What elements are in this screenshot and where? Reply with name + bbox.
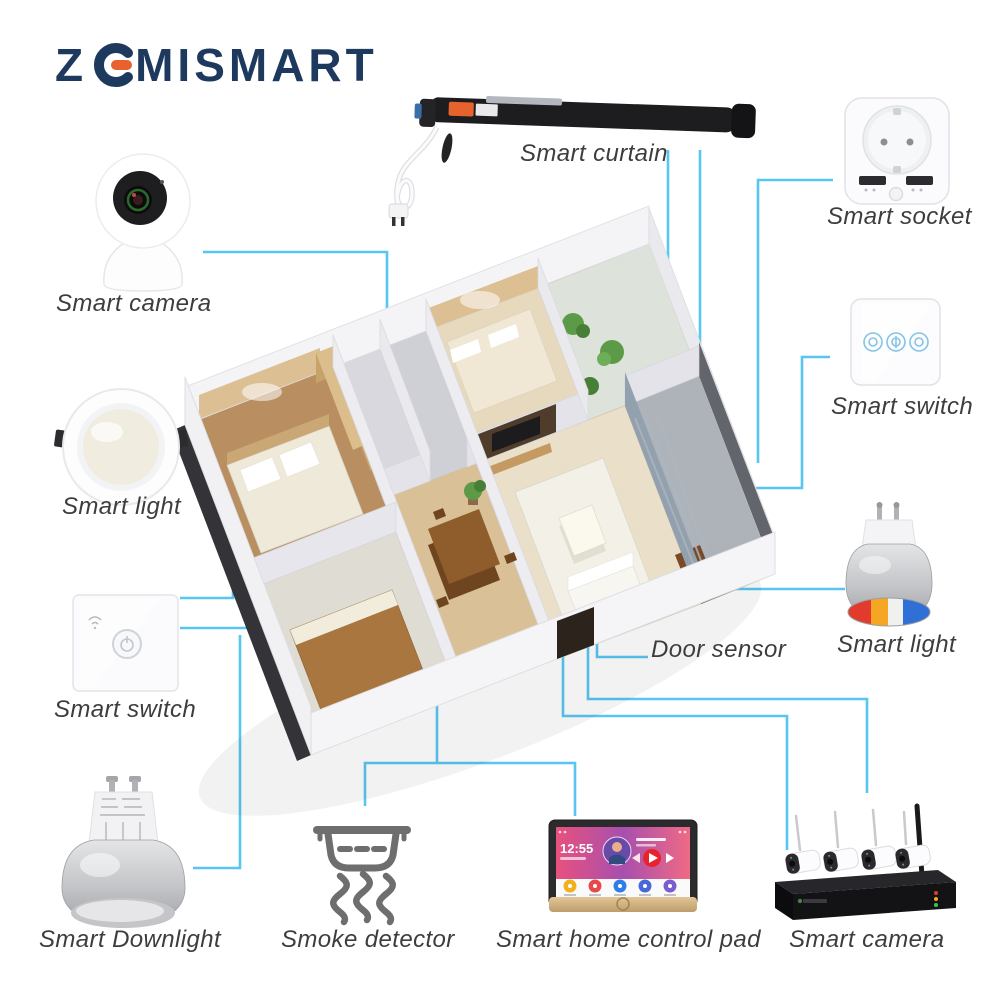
smart-downlight-device [62,776,185,928]
connector-socket [758,180,833,463]
control-pad-device: 12:55 [549,820,697,912]
smart-switch-right-device [851,299,940,385]
socket-button-icon [890,188,903,201]
label-smart-camera-top: Smart camera [56,290,212,318]
floor-plan [171,206,785,863]
label-door-sensor: Door sensor [651,636,786,664]
label-smoke-detector: Smoke detector [281,926,455,954]
smart-camera-device [96,154,190,291]
label-smart-socket: Smart socket [827,203,972,231]
label-smart-light-right: Smart light [837,631,956,659]
smart-light-right-device [846,502,932,628]
smart-home-infographic: Z MISMART [0,0,1000,1000]
bullet-cameras [785,844,932,875]
label-smart-camera-bottom: Smart camera [789,926,945,954]
label-control-pad: Smart home control pad [496,926,761,954]
label-smart-downlight: Smart Downlight [39,926,221,954]
label-smart-switch-left: Smart switch [54,696,196,724]
power-icon [113,630,141,658]
label-smart-curtain: Smart curtain [520,140,668,168]
smoke-detector-icon [317,830,407,922]
smart-socket-device [845,98,949,204]
smart-light-left-device [54,389,188,505]
nvr-camera-kit-device [775,806,956,920]
label-smart-light-left: Smart light [62,493,181,521]
pad-clock: 12:55 [560,841,593,856]
usb-port-icon [859,176,886,185]
smart-switch-left-device [73,595,178,691]
label-smart-switch-right: Smart switch [831,393,973,421]
usb-port-icon [906,176,933,185]
